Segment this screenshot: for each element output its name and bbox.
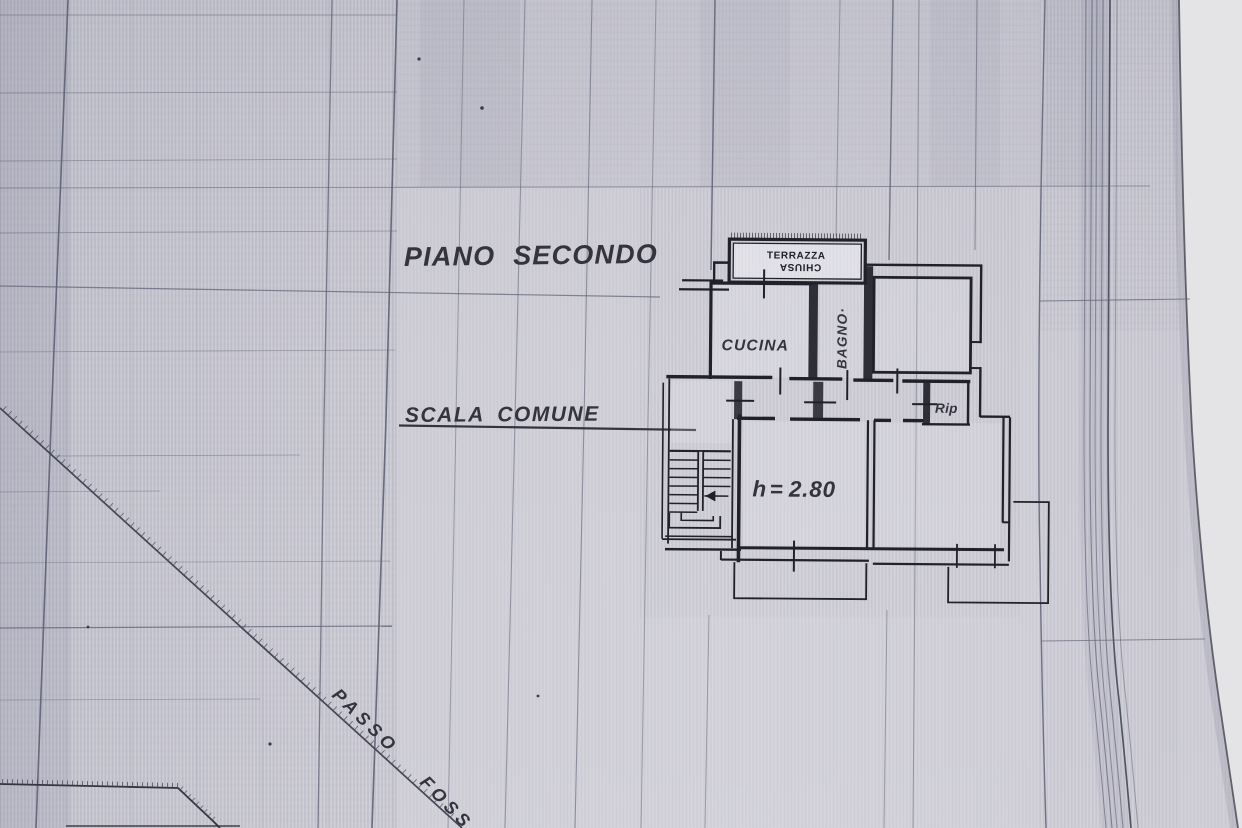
svg-text:PIANO SECONDO: PIANO SECONDO [404, 239, 658, 272]
svg-text:CHIUSA: CHIUSA [779, 261, 821, 272]
svg-text:BAGNO·: BAGNO· [834, 307, 849, 369]
svg-text:Rip: Rip [935, 401, 958, 416]
svg-text:FOSS: FOSS [416, 772, 477, 828]
svg-text:CUCINA: CUCINA [722, 337, 790, 355]
svg-text:PASSO: PASSO [328, 684, 402, 757]
svg-text:TERRAZZA: TERRAZZA [767, 250, 826, 261]
svg-text:SCALA COMUNE: SCALA COMUNE [405, 403, 600, 427]
svg-text:h = 2.80: h = 2.80 [752, 476, 836, 502]
